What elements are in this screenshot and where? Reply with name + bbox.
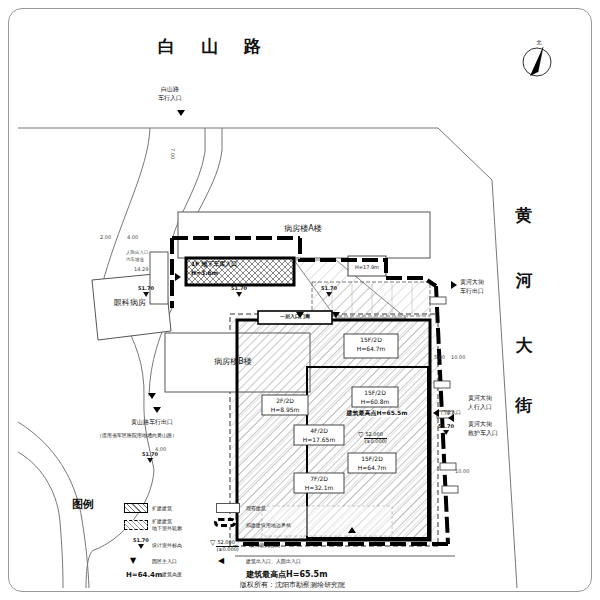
entrance-arrow (148, 393, 156, 399)
huangshan-exit-label: 黄山路车行出口 (131, 419, 173, 426)
huanghe-exit-line2: 车行出口 (460, 288, 484, 295)
anno-4f-line1: 4F/2D (310, 428, 328, 435)
baishan-road-label: 白山路 (158, 37, 287, 57)
baishan-entrance-line1: 白山路 (161, 86, 179, 93)
indoor-elevation-datum: (±0.000) (364, 439, 386, 445)
level-glyph: ▽ (358, 432, 363, 438)
legend-swatch-underground (124, 520, 148, 530)
entrance-arrow (448, 414, 454, 422)
anno-4f-line2: H=17.65m (303, 437, 336, 444)
legend-main-entrance-symbol: ▼ (130, 557, 136, 565)
entrance-arrow (348, 527, 356, 533)
anno-15f-mid-line1: 15F/2D (364, 390, 386, 397)
huanghe-amb-line1: 黄河大街 (468, 421, 492, 428)
legend-label-main-entrance: 园区主入口 (152, 559, 177, 565)
legend-height-value: H=64.4m (126, 571, 162, 579)
legend-swatch-existing (216, 503, 240, 513)
entrance-arrow (175, 273, 181, 281)
anno-15f-top-line2: H=64.7m (357, 346, 386, 353)
baishan-entrance-line2: 车行入口 (158, 95, 182, 102)
legend-label-outdoor-elev: 设计室外标高 (152, 543, 182, 549)
legend-label-building-entrance: 建筑出入口、人防出入口 (246, 559, 301, 565)
dimension-label: 2.00 (100, 234, 111, 240)
huanghe-street-char-4: 街 (516, 396, 533, 416)
ramp-label-line1: 人防出入口 (126, 250, 149, 255)
site-plan-sheet: 白山路 黄 河 大 街 北 病房楼A楼 病房楼B楼 眼科病房 1F 地下车库入口… (0, 0, 600, 600)
legend-label-height: 建筑高度 (162, 572, 182, 578)
dimension-label: 4.00 (127, 234, 138, 240)
huanghe-exit-line1: 黄河大街 (460, 279, 484, 286)
legend-label-underground-1: 扩建建筑 (152, 519, 172, 525)
anno-15f-top-line1: 15F/2D (360, 337, 382, 344)
dimension-label: 5.00 (434, 354, 445, 360)
indoor-elevation-mark: ▽ 52.000 (±0.000) (358, 432, 387, 444)
anno-15f-mid-line2: H=60.8m (361, 399, 390, 406)
elevation-mark: 51.70 (142, 452, 158, 463)
legend-outdoor-elev-symbol: 51.70 (133, 538, 149, 549)
legend-indoor-elev-datum: (±0.000) (216, 547, 238, 553)
dimension-label: 14.29 (134, 266, 148, 272)
north-arrow (523, 47, 551, 76)
elevation-mark: 51.70 (231, 286, 247, 297)
anno-2f-line1: 2F/2D (276, 398, 294, 405)
entrance-arrow (177, 110, 185, 116)
garage-entrance-line1: 1F 地下车库入口 (191, 261, 237, 268)
entrance-arrow (296, 312, 304, 318)
legend-label-boundary: 拟建建设用地边界线 (246, 523, 291, 529)
anno-15f-bot-line2: H=64.7m (358, 465, 387, 472)
legend-swatch-boundary (214, 518, 236, 527)
ward-a-label: 病房楼A楼 (284, 224, 321, 233)
huangshan-note-label: （借用省军区医院用地通向黄山路） (97, 433, 177, 439)
huanghe-ped-line1: 黄河大街 (468, 395, 492, 402)
garage-entrance-line2: H=3.6m (191, 270, 218, 277)
ramp-label-line2: 汽车坡道 (126, 257, 144, 262)
legend-max-height: 建筑最高点H=65.5m (246, 570, 327, 579)
huanghe-street-char-2: 河 (516, 271, 533, 291)
legend-level-glyph: ▽ (210, 540, 215, 546)
eye-ward-label: 眼科病房 (114, 298, 146, 307)
anno-7f-line1: 7F/2D (310, 476, 328, 483)
copyright-footer: 版权所有：沈阳市勘察测绘研究院 (240, 581, 345, 589)
legend-building-entrance-symbol: ◀ (218, 557, 224, 565)
legend-outdoor-elev-value: 51.70 (133, 538, 149, 543)
huanghe-ped-line2: 人行入口 (468, 404, 492, 411)
legend-indoor-elev-symbol: ▽ 52.000 (±0.000) (210, 540, 239, 552)
dimension-label: 7.00 (170, 148, 176, 159)
legend-label-underground-2: 地下室外轮廓 (152, 526, 182, 532)
porch-label: 一层入口门廊 (280, 314, 310, 320)
dimension-label: 10.00 (455, 468, 469, 474)
dimension-label: 10.00 (451, 354, 465, 360)
legend-title: 图例 (72, 499, 94, 512)
elevation-mark: 51.70 (138, 286, 154, 297)
entrance-arrow (332, 312, 340, 318)
huanghe-amb-line2: 救护车入口 (468, 430, 498, 437)
legend-label-indoor-elev: 设计室内标高 (250, 543, 280, 549)
ward-a-building (178, 212, 430, 258)
huanghe-street-char-1: 黄 (516, 206, 533, 226)
lower-terrace (262, 506, 392, 536)
legend-label-expansion: 扩建建筑 (152, 506, 172, 512)
anno-7f-line2: H=32.1m (305, 485, 334, 492)
anno-15f-bot-line1: 15F/2D (361, 456, 383, 463)
anno-2f-line2: H=8.95m (271, 407, 300, 414)
north-label: 北 (537, 40, 542, 46)
entrance-arrow (451, 281, 457, 289)
elevation-mark: 51.70 (321, 286, 337, 297)
entrance-arrow (153, 407, 161, 413)
huanghe-street-char-3: 大 (516, 336, 533, 356)
podium-line2: H=17.9m (355, 265, 379, 271)
legend-label-existing: 现有建筑 (246, 506, 266, 512)
anno-max-height: 建筑最高点H=65.5m (345, 410, 408, 417)
legend-swatch-expansion (124, 503, 148, 513)
elevation-mark: 51.70 (438, 424, 454, 435)
ward-b-label: 病房楼B楼 (214, 357, 252, 366)
entrance-arrow (433, 409, 439, 417)
podium-line1: 1F (364, 258, 370, 264)
